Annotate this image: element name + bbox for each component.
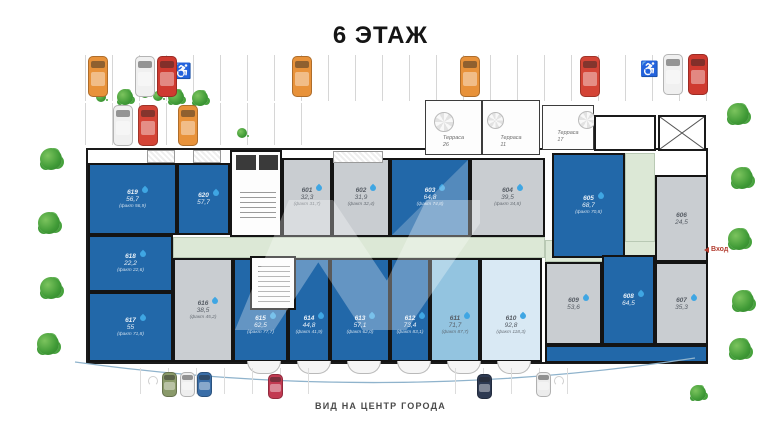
terrace-fan-icon: [434, 112, 454, 132]
car-icon: [460, 56, 480, 97]
car-icon: [162, 372, 177, 397]
water-drop-icon: [139, 313, 147, 321]
tree-icon: [732, 290, 754, 312]
apartment-603[interactable]: 60364,8(факт 74,8): [390, 158, 470, 237]
bush-icon: [192, 90, 208, 106]
cart-hook-icon: [148, 376, 158, 386]
elevator-shaft: [594, 115, 656, 151]
apartment-601[interactable]: 60132,3(факт 31,7): [282, 158, 332, 237]
cart-hook-icon: [554, 376, 564, 386]
apartment-604[interactable]: 60439,5(факт 34,8): [470, 158, 545, 237]
wheelchair-icon: ♿: [640, 60, 659, 78]
bush-icon: [237, 128, 247, 138]
stairs-icon: [258, 266, 290, 302]
apartment-602[interactable]: 60231,9(факт 32,4): [332, 158, 390, 237]
water-drop-icon: [637, 290, 645, 298]
stairs-icon: [240, 190, 276, 218]
water-drop-icon: [211, 296, 219, 304]
page-title: 6 ЭТАЖ: [0, 22, 761, 50]
apartment-616[interactable]: 61638,5(факт 45,2): [173, 258, 233, 362]
car-icon: [135, 56, 155, 97]
car-icon: [268, 374, 283, 399]
apartment-612[interactable]: 61273,4(факт 83,1): [390, 258, 430, 362]
entrance-marker: Вход: [704, 246, 728, 253]
car-icon: [292, 56, 312, 97]
apartment-620[interactable]: 62057,7: [177, 163, 230, 235]
water-drop-icon: [597, 192, 605, 200]
tree-icon: [729, 338, 751, 360]
balcony: [333, 151, 383, 163]
water-drop-icon: [317, 311, 325, 319]
water-drop-icon: [690, 293, 698, 301]
water-drop-icon: [418, 311, 426, 319]
tree-icon: [728, 228, 750, 250]
car-icon: [536, 372, 551, 397]
apartment-611[interactable]: 61171,7(факт 87,7): [430, 258, 480, 362]
balcony: [193, 150, 221, 163]
tree-icon: [731, 167, 753, 189]
car-icon: [178, 105, 198, 146]
apartment-605[interactable]: 60568,7(факт 70,8): [552, 153, 625, 258]
car-icon: [180, 372, 195, 397]
apartment-608[interactable]: 60864,5: [602, 255, 655, 345]
water-drop-icon: [141, 185, 149, 193]
stairwell-2: [250, 256, 296, 310]
water-drop-icon: [438, 184, 446, 192]
entrance-label: Вход: [711, 246, 728, 253]
terrace-1: Терраса26: [425, 100, 482, 155]
floor-plan-scene: 6 ЭТАЖ ♿ ♿ Терраса26 Терраса11 Терраса17: [0, 0, 761, 435]
car-icon: [157, 56, 177, 97]
apartment-618[interactable]: 61822,2(факт 22,6): [88, 235, 173, 292]
water-drop-icon: [212, 189, 220, 197]
apartment-609[interactable]: 60953,6: [545, 262, 602, 345]
apartment-619[interactable]: 61956,7(факт 56,9): [88, 163, 177, 235]
terrace-fan-icon: [487, 112, 504, 129]
apartment-607[interactable]: 60735,3: [655, 262, 708, 345]
car-icon: [580, 56, 600, 97]
water-drop-icon: [516, 184, 524, 192]
corridor: [173, 237, 545, 258]
elevator-car: [236, 155, 256, 170]
view-direction-label: ВИД НА ЦЕНТР ГОРОДА: [0, 401, 761, 411]
elevator-car: [259, 155, 278, 170]
corridor-vertical: [625, 153, 655, 242]
parking-row-bottom: [455, 368, 585, 394]
car-icon: [477, 374, 492, 399]
stairwell-elevator: [230, 150, 282, 237]
tree-icon: [40, 148, 62, 170]
arrow-left-icon: [704, 247, 709, 253]
balcony: [147, 150, 175, 163]
apartment-613[interactable]: 61357,1(факт 62,0): [330, 258, 390, 362]
tree-icon: [727, 103, 749, 125]
car-icon: [688, 54, 708, 95]
tree-icon: [37, 333, 59, 355]
water-drop-icon: [139, 250, 147, 258]
car-icon: [138, 105, 158, 146]
water-drop-icon: [315, 184, 323, 192]
apartment-610[interactable]: 61092,8(факт 118,3): [480, 258, 542, 362]
water-drop-icon: [369, 184, 377, 192]
water-drop-icon: [463, 311, 471, 319]
tree-icon: [38, 212, 60, 234]
tree-icon: [40, 277, 62, 299]
car-icon: [197, 372, 212, 397]
water-drop-icon: [582, 293, 590, 301]
car-icon: [113, 105, 133, 146]
water-drop-icon: [368, 311, 376, 319]
car-icon: [663, 54, 683, 95]
bush-icon: [117, 89, 133, 105]
shaft-x-box: [658, 115, 706, 151]
water-drop-icon: [519, 311, 527, 319]
water-drop-icon: [269, 311, 277, 319]
apartment-606[interactable]: 60624,5: [655, 175, 708, 262]
car-icon: [88, 56, 108, 97]
